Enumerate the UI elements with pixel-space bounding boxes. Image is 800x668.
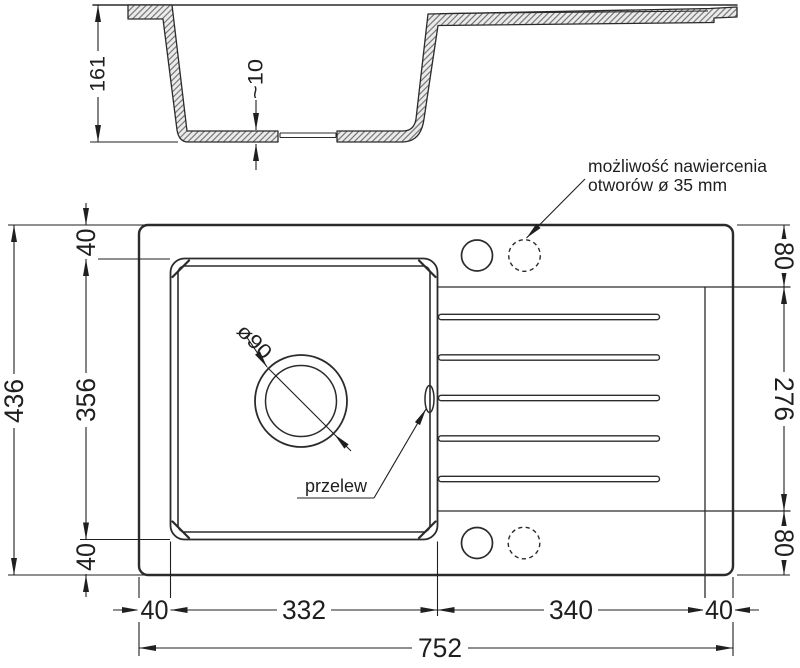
drill-note-line1: możliwość nawiercenia — [588, 156, 767, 176]
diameter-chord — [268, 368, 335, 435]
section-view: 161 ~10 — [87, 5, 738, 170]
dim-bottom-offset-text: 40 — [71, 543, 101, 571]
section-drain-lip — [280, 133, 336, 138]
overflow-annotation: przelew — [297, 409, 426, 498]
bowl-corner-chamfers — [173, 261, 436, 539]
dim-drainer-length-label: 276 — [769, 372, 799, 426]
dim-bowl-length-label: 356 — [71, 373, 101, 427]
dims-right: 80 276 80 — [737, 225, 799, 575]
dim-bowl-width-text: 332 — [282, 595, 326, 625]
drill-note-line2: otworów ø 35 mm — [588, 175, 727, 195]
drain-diameter-label: ø90 — [232, 320, 276, 364]
dim-drainer-length-text: 276 — [769, 377, 799, 421]
dim-section-height-label: 161 — [87, 51, 110, 97]
dim-left-margin-text: 40 — [141, 595, 169, 625]
overflow-leader — [374, 409, 426, 498]
dim-section-height-text: 161 — [87, 56, 110, 92]
dim-section-thickness-label: ~10 — [245, 59, 268, 99]
dims-left: 436 40 356 40 — [0, 203, 170, 597]
dim-section-thickness-text: ~10 — [245, 59, 268, 99]
dim-right-top-text: 80 — [769, 242, 799, 270]
dim-overall-width-text: 752 — [418, 633, 462, 663]
dim-top-offset-label: 40 — [71, 226, 101, 260]
dim-overall-depth-label: 436 — [0, 374, 29, 428]
bowl-outer-rim — [171, 259, 438, 540]
dim-top-offset-text: 40 — [71, 229, 101, 257]
leader-tail — [335, 435, 352, 452]
dim-right-margin-text: 40 — [705, 595, 733, 625]
section-right-body-drainboard — [337, 7, 737, 142]
groove — [439, 436, 660, 441]
dim-drainer-width-text: 340 — [549, 595, 593, 625]
groove — [439, 476, 660, 481]
dim-bowl-width-label: 332 — [277, 595, 331, 625]
groove — [439, 314, 660, 319]
dim-right-bottom-label: 80 — [769, 526, 799, 560]
drain-diameter-text: ø90 — [232, 320, 276, 364]
dim-right-top-label: 80 — [769, 239, 799, 273]
dim-overall-width-label: 752 — [412, 633, 468, 663]
dim-left-margin-label: 40 — [138, 595, 172, 625]
dim-overall-depth-text: 436 — [0, 379, 29, 423]
optional-hole-top — [509, 240, 541, 272]
dim-bottom-offset-label: 40 — [71, 540, 101, 574]
drainer-grooves — [439, 314, 660, 481]
sink-technical-drawing: 161 ~10 — [0, 0, 800, 668]
dim-right-bottom-text: 80 — [769, 529, 799, 557]
faucet-hole-top — [462, 240, 493, 271]
overflow-label: przelew — [305, 476, 368, 496]
optional-hole-bottom — [508, 527, 540, 559]
faucet-hole-bottom — [462, 528, 493, 559]
dim-bowl-length-text: 356 — [71, 378, 101, 422]
drawing-page: 161 ~10 — [0, 0, 800, 668]
bowl — [171, 259, 438, 540]
dims-bottom: 40 332 340 40 752 — [113, 542, 759, 664]
plan-view: ø90 przelew możliwość nawiercenia otworó… — [0, 156, 799, 663]
dim-section-thickness: ~10 — [245, 59, 268, 170]
groove — [439, 395, 660, 400]
groove — [439, 355, 660, 360]
drill-note-leader — [527, 179, 586, 238]
dim-right-margin-label: 40 — [703, 595, 735, 625]
dim-drainer-width-label: 340 — [544, 595, 598, 625]
